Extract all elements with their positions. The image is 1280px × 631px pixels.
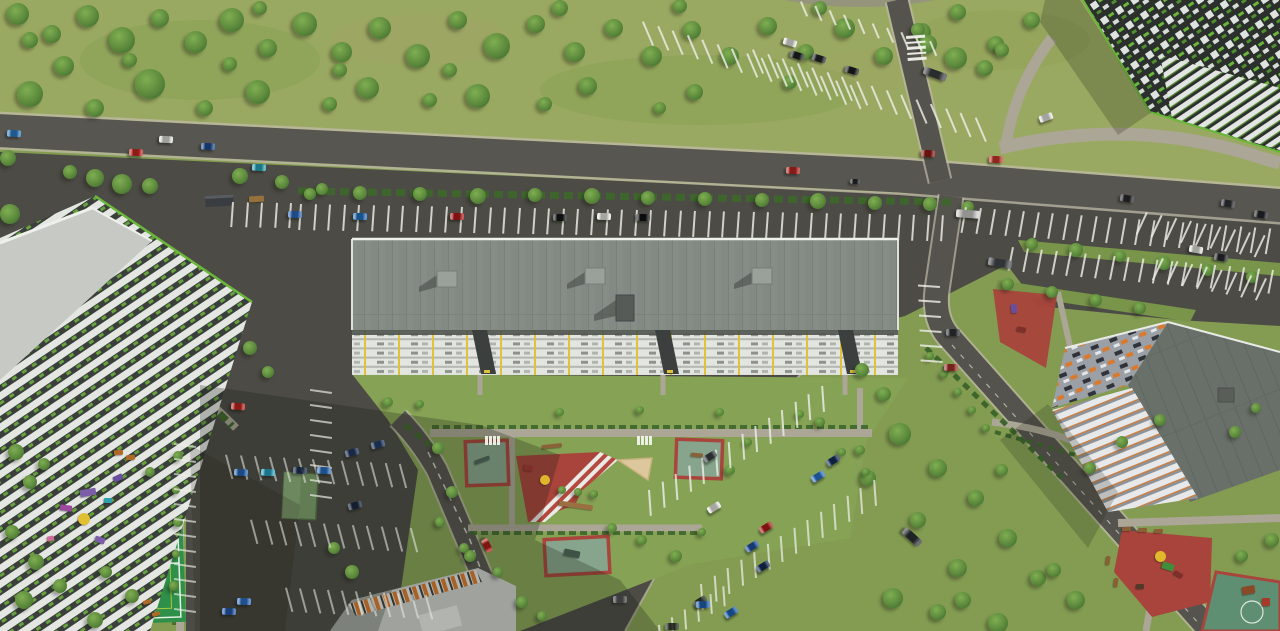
aerial-site-plan — [0, 0, 1280, 631]
bus-shelter — [205, 195, 234, 207]
terrain-layer — [0, 0, 1280, 631]
bottom-right-court — [1202, 572, 1280, 631]
playground-square-2 — [675, 439, 722, 479]
center-building — [352, 238, 898, 375]
